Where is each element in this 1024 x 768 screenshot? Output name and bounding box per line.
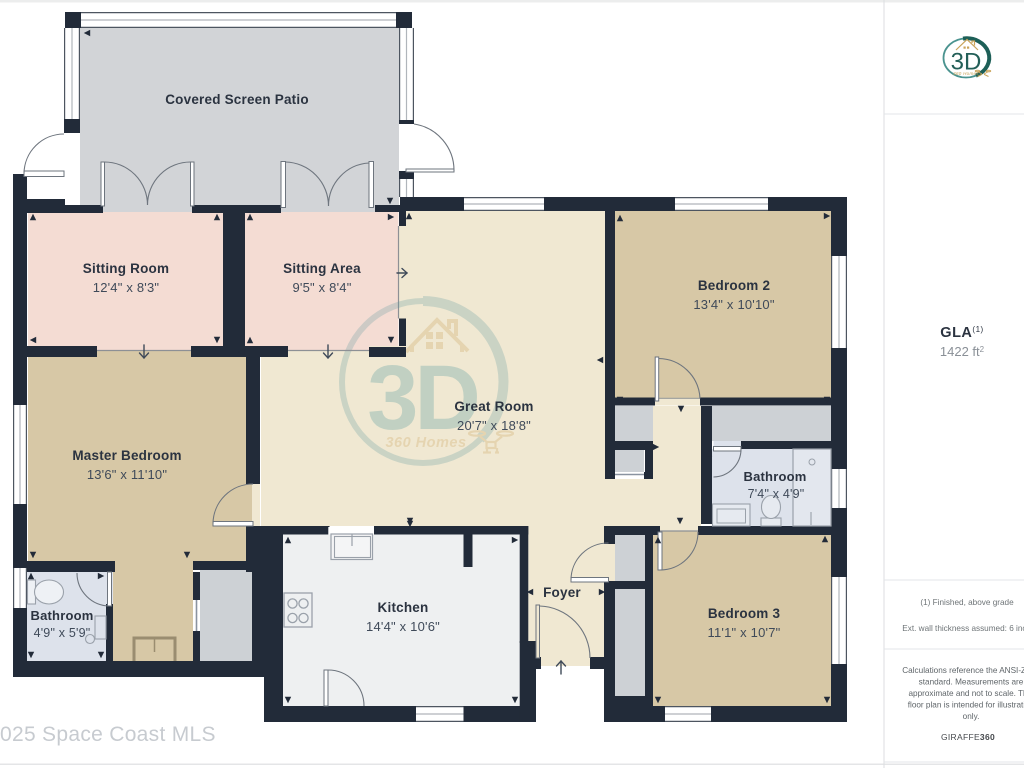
svg-text:Sitting Area: Sitting Area: [283, 261, 361, 276]
svg-text:Master Bedroom: Master Bedroom: [72, 448, 181, 463]
svg-text:13'6" x 11'10": 13'6" x 11'10": [87, 467, 168, 482]
svg-text:only.: only.: [963, 712, 980, 721]
svg-text:Sitting Room: Sitting Room: [83, 261, 169, 276]
svg-text:Kitchen: Kitchen: [378, 600, 429, 615]
svg-text:12'4" x 8'3": 12'4" x 8'3": [93, 280, 160, 295]
svg-text:Foyer: Foyer: [543, 585, 581, 600]
svg-text:(1) Finished, above grade: (1) Finished, above grade: [920, 598, 1014, 607]
svg-text:13'4" x 10'10": 13'4" x 10'10": [693, 297, 775, 312]
svg-text:2025 Space Coast MLS: 2025 Space Coast MLS: [0, 723, 216, 746]
svg-text:Great Room: Great Room: [454, 399, 533, 414]
svg-text:11'1" x 10'7": 11'1" x 10'7": [708, 625, 781, 640]
svg-text:Bathroom: Bathroom: [744, 469, 807, 484]
svg-text:Bedroom 2: Bedroom 2: [698, 278, 770, 293]
svg-text:360 Homes: 360 Homes: [385, 435, 466, 451]
svg-text:3D: 3D: [367, 347, 477, 449]
svg-text:standard. Measurements are: standard. Measurements are: [919, 678, 1024, 687]
svg-text:Covered Screen Patio: Covered Screen Patio: [165, 92, 309, 107]
svg-text:7'4" x 4'9": 7'4" x 4'9": [748, 487, 805, 501]
svg-text:9'5" x 8'4": 9'5" x 8'4": [292, 280, 351, 295]
svg-text:Ext. wall thickness assumed: 6: Ext. wall thickness assumed: 6 inches: [902, 624, 1024, 633]
svg-text:GIRAFFE360: GIRAFFE360: [941, 732, 995, 742]
svg-text:4'9" x 5'9": 4'9" x 5'9": [34, 626, 91, 640]
svg-text:Calculations reference the ANS: Calculations reference the ANSI-Z765: [902, 666, 1024, 675]
svg-text:Bathroom: Bathroom: [31, 608, 94, 623]
svg-text:approximate and not to scale.: approximate and not to scale. This: [908, 689, 1024, 698]
svg-text:floor plan is intended for ill: floor plan is intended for illustration: [908, 701, 1024, 710]
svg-text:Bedroom 3: Bedroom 3: [708, 606, 781, 621]
svg-text:1422 ft2: 1422 ft2: [940, 344, 985, 359]
svg-text:20'7" x 18'8": 20'7" x 18'8": [457, 418, 531, 433]
svg-text:14'4" x 10'6": 14'4" x 10'6": [366, 619, 440, 634]
